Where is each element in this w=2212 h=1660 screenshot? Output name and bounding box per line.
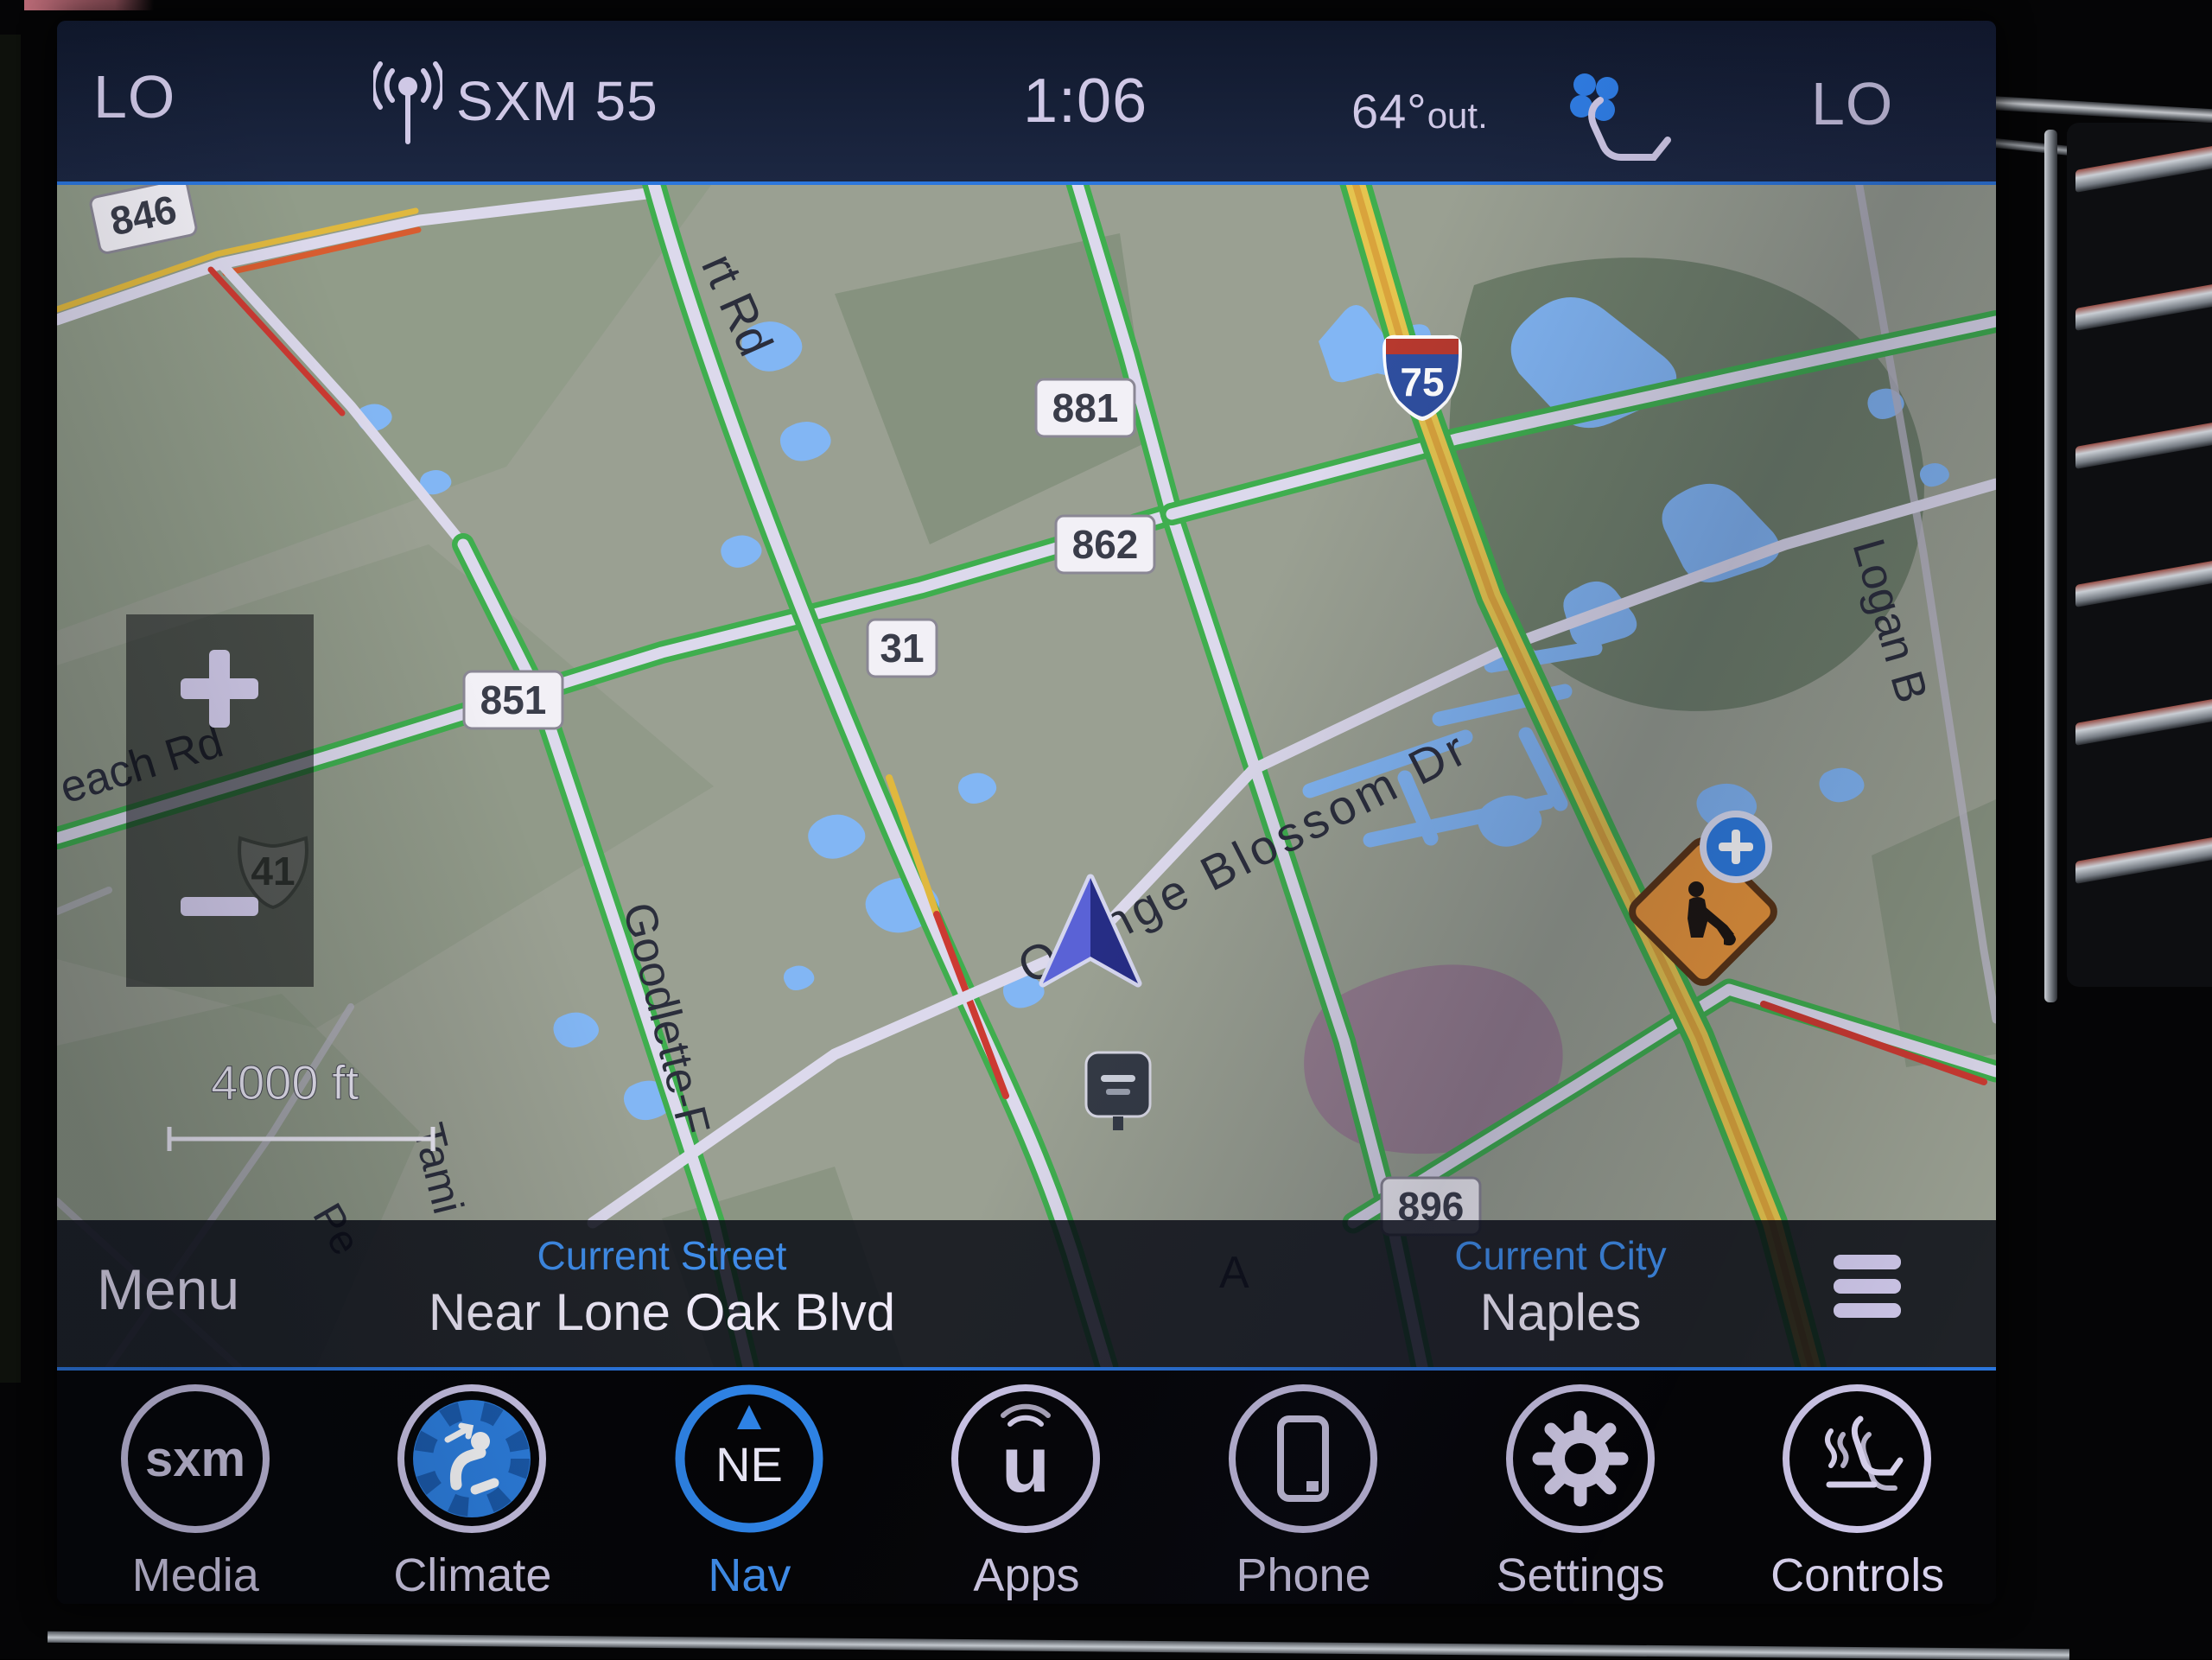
app-label: Controls — [1728, 1549, 1987, 1602]
app-label: Settings — [1451, 1549, 1710, 1602]
gear-icon — [1501, 1379, 1661, 1539]
current-street-block: Current Street Near Lone Oak Blvd — [316, 1232, 1007, 1342]
app-label: Media — [66, 1549, 325, 1602]
air-vent — [2067, 123, 2212, 987]
app-label: Climate — [343, 1549, 602, 1602]
svg-text:881: 881 — [1052, 385, 1119, 430]
current-street-value: Near Lone Oak Blvd — [316, 1282, 1007, 1342]
chrome-trim — [48, 1631, 2069, 1660]
app-label: Nav — [620, 1549, 879, 1602]
route-shield-881: 881 — [1036, 379, 1135, 436]
route-shield-862: 862 — [1056, 516, 1154, 573]
dashboard-edge — [0, 35, 21, 1383]
antenna-icon — [373, 55, 442, 150]
climate-icon — [392, 1379, 552, 1539]
radio-station: SXM 55 — [456, 69, 658, 133]
route-shield-31: 31 — [868, 620, 937, 677]
app-bar: sxm Media Climate NE Nav — [57, 1367, 1996, 1604]
info-bar: Menu Current Street Near Lone Oak Blvd C… — [57, 1220, 1996, 1371]
uconnect-apps-icon: u — [946, 1379, 1106, 1539]
navigation-map[interactable]: rt Rd Orange Blossom Dr each Rd Goodlett… — [57, 181, 1996, 1367]
hamburger-menu-icon[interactable] — [1834, 1255, 1901, 1327]
infotainment-screen: LO SXM 55 1:06 64°out. LO — [57, 21, 1996, 1604]
svg-text:u: u — [1001, 1421, 1050, 1509]
current-city-block: Current City Naples — [1293, 1232, 1828, 1342]
status-bar: LO SXM 55 1:06 64°out. LO — [57, 21, 1996, 185]
map-canvas: rt Rd Orange Blossom Dr each Rd Goodlett… — [57, 181, 1996, 1367]
zoom-out-button[interactable] — [181, 897, 258, 916]
app-item-climate[interactable]: Climate — [343, 1379, 602, 1602]
passenger-temp-setting: LO — [1811, 69, 1893, 138]
menu-button[interactable]: Menu — [97, 1256, 239, 1322]
app-item-controls[interactable]: Controls — [1728, 1379, 1987, 1602]
seat-controls-icon — [1777, 1379, 1937, 1539]
scale-label: 4000 ft — [211, 1055, 359, 1110]
current-city-label: Current City — [1293, 1232, 1828, 1279]
outside-temperature: 64°out. — [1351, 83, 1488, 139]
app-label: Apps — [897, 1549, 1156, 1602]
sxm-media-icon: sxm — [116, 1379, 276, 1539]
svg-text:851: 851 — [480, 677, 547, 722]
app-item-phone[interactable]: Phone — [1174, 1379, 1433, 1602]
svg-text:75: 75 — [1400, 359, 1444, 404]
app-item-settings[interactable]: Settings — [1451, 1379, 1710, 1602]
svg-text:862: 862 — [1072, 522, 1139, 567]
app-label: Phone — [1174, 1549, 1433, 1602]
current-city-value: Naples — [1293, 1282, 1828, 1342]
phone-icon — [1224, 1379, 1383, 1539]
svg-text:NE: NE — [715, 1437, 783, 1491]
app-item-apps[interactable]: u Apps — [897, 1379, 1156, 1602]
driver-temp-setting: LO — [93, 62, 175, 131]
clock: 1:06 — [1023, 66, 1147, 137]
cluster-plus-icon[interactable] — [1703, 814, 1769, 880]
app-item-media[interactable]: sxm Media — [66, 1379, 325, 1602]
current-street-label: Current Street — [316, 1232, 1007, 1279]
app-item-nav[interactable]: NE Nav — [620, 1379, 879, 1602]
svg-text:31: 31 — [880, 626, 924, 671]
route-shield-851: 851 — [464, 671, 563, 728]
vent-chrome-edge — [2044, 130, 2057, 1002]
reflection-sliver — [24, 0, 154, 10]
nav-compass-icon: NE — [670, 1379, 829, 1539]
zoom-panel — [126, 614, 314, 987]
svg-text:sxm: sxm — [145, 1431, 245, 1487]
vented-seat-status-icon — [1560, 66, 1733, 161]
